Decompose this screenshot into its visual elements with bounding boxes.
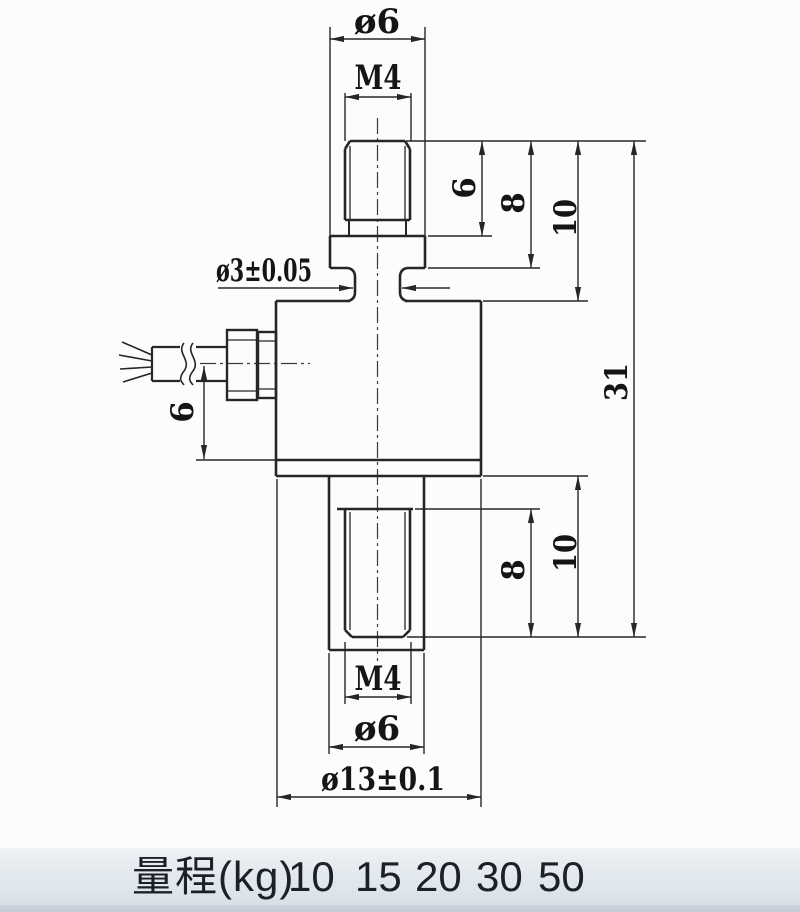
dim-len8-top: 8 <box>496 192 532 214</box>
load-cell-drawing-page: { "drawing": { "title": "miniature load … <box>0 0 800 912</box>
range-value: 15 <box>355 851 402 903</box>
dim-len31-overall: 31 <box>599 363 635 401</box>
dim-dia6-top: ø6 <box>354 2 400 42</box>
cable-break-curve <box>190 343 196 385</box>
dim-len6-cable: 6 <box>165 401 201 423</box>
technical-drawing: ø6 M4 ø3±0.05 6 8 10 31 6 8 10 M4 ø6 ø13… <box>0 0 800 848</box>
range-table-label: 量程(kg) <box>132 851 294 903</box>
range-table: 量程(kg) 10 15 20 30 50 <box>0 848 800 905</box>
dim-len8-bottom: 8 <box>496 559 532 581</box>
cable-break-curve <box>181 343 187 385</box>
dim-m4-top: M4 <box>355 58 402 98</box>
dim-dia6-bottom: ø6 <box>354 709 400 749</box>
dim-len6-top: 6 <box>447 177 483 199</box>
dim-dia13-body: ø13±0.1 <box>321 760 445 798</box>
cable-assembly <box>119 330 276 400</box>
dim-len10-top: 10 <box>548 199 584 237</box>
main-body-outline <box>276 301 481 476</box>
range-value: 50 <box>538 851 585 903</box>
bottom-stud-outline <box>329 476 424 650</box>
gland-washer <box>258 332 276 398</box>
dim-m4-bottom: M4 <box>355 659 402 699</box>
band-bottom-edge <box>0 905 800 912</box>
range-value: 10 <box>288 851 335 903</box>
range-value: 20 <box>415 851 462 903</box>
dim-len10-bottom: 10 <box>548 534 584 572</box>
dimension-lines <box>204 39 634 797</box>
dim-dia3-neck: ø3±0.05 <box>216 253 312 289</box>
range-value: 30 <box>476 851 523 903</box>
